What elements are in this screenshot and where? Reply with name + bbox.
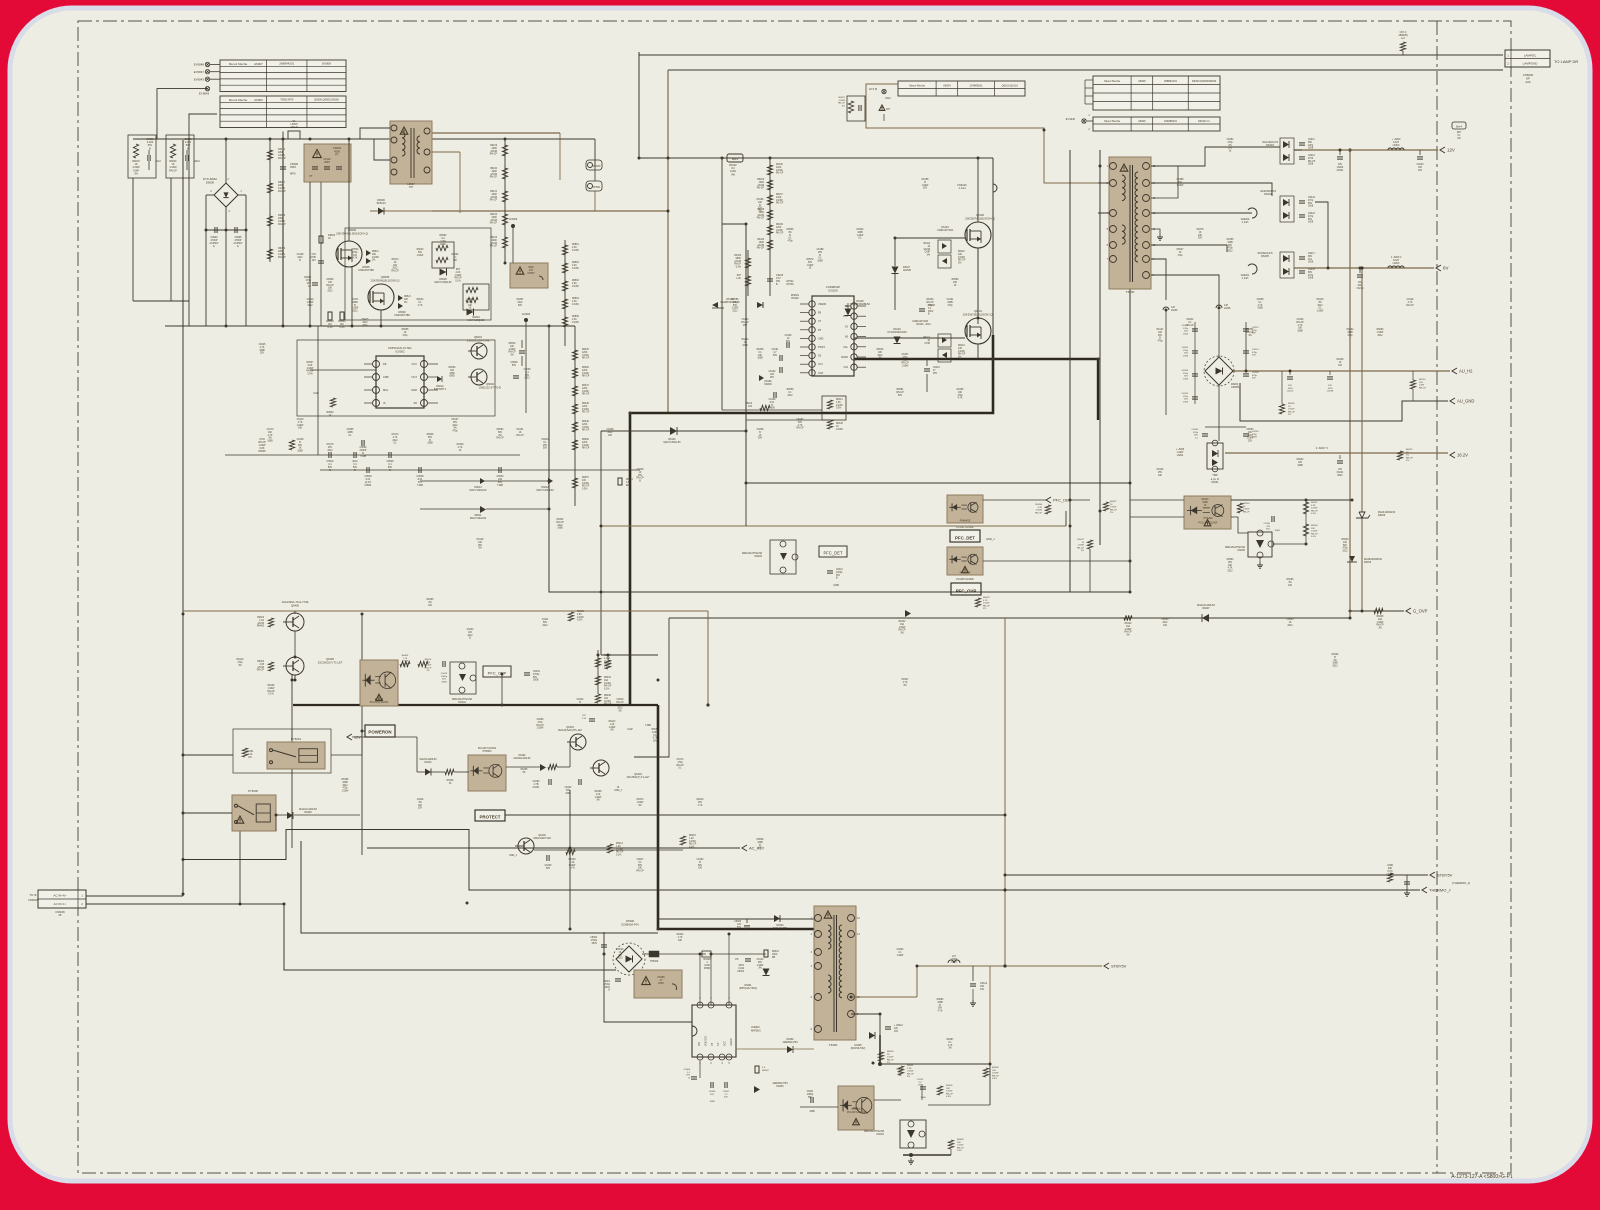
svg-text:1K: 1K [954, 285, 957, 287]
svg-text:RN-CP: RN-CP [1406, 457, 1413, 459]
svg-text:GND_J: GND_J [614, 789, 623, 792]
svg-text:RN-CP: RN-CP [901, 363, 909, 365]
svg-text:THERMO_J: THERMO_J [1429, 888, 1451, 893]
svg-text:R6121: R6121 [1157, 329, 1164, 331]
svg-text:1/10W: 1/10W [757, 245, 764, 247]
svg-text:C6244: C6244 [1252, 431, 1259, 433]
svg-text:PC123FY22J00F: PC123FY22J00F [847, 1111, 866, 1114]
svg-text:1K: 1K [459, 450, 462, 452]
svg-text:PY6000: PY6000 [248, 789, 258, 793]
svg-text:1/10W: 1/10W [922, 185, 929, 187]
svg-text:R6540: R6540 [877, 349, 884, 351]
svg-text:C6304: C6304 [737, 971, 744, 973]
svg-text:PFC_DET: PFC_DET [823, 551, 843, 556]
svg-text:T6300: T6300 [829, 1043, 838, 1047]
svg-text:ISA123(SAC)TP+1E?: ISA123(SAC)TP+1E? [558, 729, 583, 732]
svg-text:AU_H2: AU_H2 [1459, 369, 1473, 374]
svg-text:4.7K: 4.7K [1258, 305, 1263, 307]
svg-text:R6244: R6244 [1202, 499, 1209, 501]
svg-text:T40B: T40B [645, 724, 651, 727]
svg-text:R6417: R6417 [1078, 539, 1085, 541]
svg-text:IC6401: IC6401 [458, 701, 466, 704]
svg-text:TPN501: TPN501 [592, 186, 601, 189]
svg-text:1/10W: 1/10W [1311, 531, 1318, 533]
svg-text:C6298: C6298 [757, 429, 764, 431]
svg-text:R6695: R6695 [402, 329, 409, 331]
svg-text:D6207: D6207 [1202, 607, 1210, 610]
svg-text:R6559: R6559 [787, 389, 794, 391]
svg-text:OUT: OUT [412, 375, 418, 379]
svg-text:PH6403: PH6403 [960, 571, 971, 575]
svg-text:0.1%: 0.1% [268, 694, 273, 696]
svg-text:50V: 50V [898, 395, 903, 397]
svg-text:R6119: R6119 [958, 345, 965, 347]
svg-text:100p: 100p [1308, 145, 1314, 147]
svg-text:68V: 68V [1308, 272, 1313, 274]
svg-text:1K: 1K [299, 448, 302, 450]
svg-text:D6201: D6201 [1211, 481, 1219, 484]
svg-text:3%: 3% [1333, 660, 1336, 662]
svg-text:R6?: R6? [737, 275, 742, 277]
svg-text:1K: 1K [519, 432, 522, 434]
svg-text:160B: 160B [342, 782, 348, 784]
svg-text:10K: 10K [510, 346, 515, 348]
svg-text:D6506: D6506 [327, 279, 334, 281]
svg-text:D6?00: D6?00 [786, 283, 794, 286]
svg-text:R6049: R6049 [582, 421, 589, 423]
svg-text:D6186: D6186 [922, 179, 929, 181]
svg-text:1K: 1K [469, 308, 472, 310]
svg-text:0.33: 0.33 [328, 326, 333, 329]
svg-text:R6232: R6232 [1406, 449, 1413, 451]
svg-text:3%: 3% [1228, 145, 1231, 147]
svg-text:220K: 220K [492, 171, 498, 173]
svg-text:25V: 25V [1228, 562, 1233, 564]
svg-text:VC2: VC2 [843, 366, 848, 369]
svg-text:Q6400: Q6400 [291, 603, 300, 607]
svg-text:2.2K: 2.2K [456, 272, 461, 274]
svg-text:R6536: R6536 [449, 367, 456, 369]
svg-text:T40B: T40B [497, 484, 503, 487]
svg-text:4.7K: 4.7K [578, 705, 583, 707]
svg-text:RN-CP: RN-CP [1186, 325, 1194, 327]
svg-text:4.7K: 4.7K [268, 435, 273, 437]
svg-text:D6166: D6166 [757, 199, 764, 201]
svg-text:EY6843: EY6843 [199, 92, 210, 96]
svg-text:MA2Y130QL50: MA2Y130QL50 [434, 281, 452, 284]
svg-text:1K: 1K [1339, 362, 1342, 364]
svg-text:MUL: MUL [383, 388, 389, 392]
svg-text:L6200: L6200 [1337, 167, 1344, 169]
svg-text:3%: 3% [478, 548, 481, 550]
svg-text:1/10W: 1/10W [352, 308, 359, 310]
svg-text:FB: FB [818, 312, 821, 315]
svg-text:2012: 2012 [607, 432, 613, 434]
svg-text:R6504: R6504 [352, 249, 359, 251]
svg-text:D2SB60A-F04: D2SB60A-F04 [621, 922, 639, 926]
svg-text:C6521: C6521 [364, 484, 372, 487]
svg-text:1/10W: 1/10W [689, 841, 696, 843]
svg-text:RN-CP: RN-CP [1124, 632, 1132, 634]
svg-text:1608: 1608 [1183, 333, 1189, 335]
svg-text:R6400: R6400 [268, 685, 275, 687]
svg-text:A6005: A6005 [1138, 79, 1146, 83]
svg-text:R6328: R6328 [467, 299, 474, 301]
svg-text:D6367: D6367 [517, 299, 524, 301]
svg-text:IC6402: IC6402 [754, 555, 762, 558]
svg-text:R6301: R6301 [907, 1065, 914, 1067]
svg-text:1/10W: 1/10W [572, 268, 579, 270]
svg-text:R6442: R6442 [899, 621, 906, 623]
svg-text:3%: 3% [907, 1076, 910, 1078]
svg-text:BAT54HT1: BAT54HT1 [434, 388, 447, 391]
svg-text:25V: 25V [898, 1072, 903, 1074]
svg-text:FB: FB [383, 362, 387, 366]
svg-text:RN-CP: RN-CP [1376, 625, 1384, 627]
svg-text:C6307: C6307 [723, 1091, 730, 1093]
svg-text:EMD: EMD [449, 376, 454, 378]
svg-text:3%: 3% [1288, 414, 1291, 416]
svg-text:C6627: C6627 [637, 859, 644, 861]
svg-text:RN-CP: RN-CP [1077, 547, 1084, 549]
svg-text:D6000: D6000 [206, 180, 215, 184]
svg-text:50V: 50V [518, 305, 523, 307]
svg-text:1/10W: 1/10W [946, 1091, 953, 1093]
svg-text:10K: 10K [372, 254, 377, 256]
svg-text:C6419: C6419 [297, 419, 304, 421]
svg-text:R6564: R6564 [572, 298, 579, 300]
svg-text:RN-CP: RN-CP [402, 663, 409, 665]
svg-text:C6225: C6225 [259, 344, 266, 346]
svg-text:R6048: R6048 [582, 403, 589, 405]
svg-text:C6199: C6199 [297, 254, 304, 256]
svg-text:5%: 5% [887, 1062, 890, 1064]
svg-text:160B: 160B [347, 432, 353, 434]
svg-text:3%: 3% [596, 800, 599, 802]
svg-text:1/10W: 1/10W [1377, 622, 1384, 624]
svg-text:RN-CP: RN-CP [496, 438, 504, 440]
svg-text:TO LAMP DR: TO LAMP DR [1554, 59, 1578, 64]
svg-text:RN-CP: RN-CP [636, 871, 644, 873]
svg-text:470p: 470p [342, 788, 348, 790]
svg-text:RN-CP: RN-CP [582, 486, 590, 488]
svg-text:C6101: C6101 [772, 349, 779, 351]
svg-text:10K: 10K [1158, 475, 1163, 477]
svg-text:10K: 10K [946, 1088, 950, 1090]
svg-text:STBY5V: STBY5V [1437, 873, 1453, 878]
svg-text:25V: 25V [818, 252, 823, 254]
svg-text:A6004: A6004 [943, 83, 951, 87]
svg-text:160B: 160B [833, 584, 839, 587]
svg-text:10K: 10K [958, 348, 963, 350]
svg-text:1/10W: 1/10W [857, 235, 864, 237]
svg-text:D6563: D6563 [1162, 619, 1169, 621]
svg-text:50V: 50V [836, 575, 841, 577]
svg-text:D6102: D6102 [791, 297, 799, 300]
svg-text:R6129: R6129 [490, 145, 497, 147]
svg-text:3%: 3% [498, 435, 501, 437]
svg-text:RN-CP: RN-CP [1406, 305, 1414, 307]
svg-text:1/10W: 1/10W [776, 200, 783, 202]
svg-text:2.2A: 2.2A [248, 753, 253, 756]
svg-text:D6303: D6303 [776, 1085, 784, 1088]
svg-text:50V: 50V [773, 355, 778, 357]
svg-text:470p: 470p [1227, 248, 1233, 250]
svg-text:CHP: CHP [313, 391, 319, 395]
svg-text:1uH: 1uH [1171, 307, 1176, 309]
svg-text:R6287: R6287 [947, 1039, 954, 1041]
svg-text:R6265: R6265 [427, 599, 434, 601]
svg-text:160B: 160B [1257, 308, 1263, 310]
svg-text:1/10W: 1/10W [509, 349, 516, 351]
svg-text:D6174: D6174 [392, 434, 399, 436]
svg-text:1/10W: 1/10W [257, 623, 264, 625]
svg-text:1C: 1C [308, 285, 311, 288]
svg-text:RN-CP: RN-CP [757, 188, 765, 190]
svg-text:120K: 120K [582, 388, 588, 390]
svg-text:(05HQ4Z+TPA2): (05HQ4Z+TPA2) [739, 987, 757, 990]
svg-text:R6109: R6109 [776, 224, 783, 226]
svg-text:GND: GND [818, 337, 824, 340]
svg-text:1.1uH: 1.1uH [1242, 277, 1249, 280]
svg-text:2012: 2012 [392, 268, 398, 270]
svg-text:1/8W: 1/8W [449, 373, 455, 375]
svg-text:RN-CP: RN-CP [907, 1073, 914, 1075]
svg-text:1.5K: 1.5K [836, 402, 841, 404]
svg-text:IC6200: IC6200 [1237, 549, 1245, 552]
svg-text:D6190: D6190 [897, 1069, 904, 1071]
svg-text:25V: 25V [743, 325, 748, 327]
svg-text:1000p: 1000p [807, 1094, 814, 1096]
svg-text:R6528: R6528 [258, 450, 266, 453]
svg-text:16V: 16V [1288, 385, 1292, 387]
svg-text:2SK3934(LB)1SONY,Q: 2SK3934(LB)1SONY,Q [371, 278, 401, 282]
svg-text:RN-CP: RN-CP [1311, 533, 1318, 535]
svg-text:250V: 250V [928, 311, 934, 313]
svg-text:50V: 50V [442, 679, 446, 681]
svg-text:RN-CP: RN-CP [490, 154, 498, 156]
svg-text:1KV: 1KV [311, 259, 316, 262]
svg-text:3%: 3% [983, 608, 986, 610]
svg-text:MSIN6: MSIN6 [764, 383, 772, 386]
svg-text:RN-CP: RN-CP [490, 177, 498, 179]
svg-text:3%: 3% [1248, 335, 1251, 337]
svg-text:250V: 250V [592, 943, 598, 945]
svg-text:R6428: R6428 [569, 859, 576, 861]
svg-text:C6413: C6413 [441, 673, 448, 675]
svg-text:470p: 470p [787, 241, 793, 243]
svg-text:1/10W: 1/10W [417, 255, 424, 257]
svg-text:D6206: D6206 [1364, 561, 1372, 564]
svg-text:2012: 2012 [617, 708, 623, 710]
svg-text:VCC: VCC [412, 362, 418, 366]
svg-text:1K: 1K [329, 414, 332, 417]
svg-text:C6?: C6? [886, 109, 891, 111]
svg-text:D6208: D6208 [1378, 514, 1386, 517]
svg-text:Q6100,Q6101: Q6100,Q6101 [1002, 83, 1019, 87]
svg-text:D6008: D6008 [322, 62, 331, 66]
svg-text:R6511: R6511 [372, 251, 379, 253]
svg-text:RN-CP: RN-CP [776, 173, 784, 175]
svg-text:10K: 10K [1198, 235, 1203, 237]
svg-text:160B: 160B [441, 681, 447, 683]
svg-text:1/10W: 1/10W [490, 243, 497, 245]
svg-text:50V: 50V [525, 375, 530, 377]
svg-text:3%: 3% [268, 438, 271, 440]
svg-text:RN-CP: RN-CP [776, 233, 784, 235]
svg-text:R6057: R6057 [582, 477, 589, 479]
svg-text:RN-CP: RN-CP [582, 430, 590, 432]
svg-text:R6419: R6419 [237, 659, 244, 661]
svg-text:PFC_OVP: PFC_OVP [956, 589, 977, 594]
svg-text:RN-CP: RN-CP [958, 354, 966, 356]
svg-text:25V: 25V [453, 422, 458, 424]
svg-text:RN-CP: RN-CP [278, 223, 286, 226]
svg-text:2012: 2012 [787, 395, 793, 397]
svg-text:50V: 50V [710, 1094, 714, 1096]
svg-text:50V: 50V [1184, 399, 1188, 401]
svg-text:D6203-D6205/D6204: D6203-D6205/D6204 [1192, 79, 1217, 83]
svg-text:PT: PT [309, 174, 313, 178]
svg-text:MA2Y130QL50: MA2Y130QL50 [467, 319, 485, 322]
svg-text:680K: 680K [736, 258, 742, 260]
svg-text:RN-CP: RN-CP [391, 271, 399, 273]
svg-text:160B: 160B [1297, 465, 1303, 467]
svg-text:268894201: 268894201 [279, 62, 294, 66]
svg-text:2012: 2012 [327, 450, 333, 452]
svg-text:R6410: R6410 [697, 799, 704, 801]
svg-text:50V: 50V [418, 252, 423, 254]
svg-text:0.5%: 0.5% [992, 1078, 997, 1080]
svg-text:4.7B: 4.7B [534, 784, 539, 786]
svg-text:2012: 2012 [557, 525, 563, 527]
svg-text:470p: 470p [1252, 375, 1258, 377]
svg-text:3%: 3% [618, 711, 621, 713]
svg-text:T6200: T6200 [1126, 290, 1135, 294]
svg-text:120K: 120K [582, 352, 588, 354]
svg-text:470p: 470p [537, 722, 543, 724]
svg-text:2012: 2012 [467, 635, 473, 637]
svg-text:R6562: R6562 [572, 262, 579, 264]
svg-text:1/10W: 1/10W [836, 429, 843, 431]
svg-text:50V: 50V [733, 305, 738, 307]
svg-text:3%: 3% [948, 1048, 951, 1050]
svg-text:10K: 10K [958, 254, 963, 256]
svg-text:25V: 25V [1228, 245, 1233, 247]
svg-text:RN-CP: RN-CP [556, 522, 564, 524]
svg-text:160B: 160B [709, 1101, 715, 1103]
svg-text:R6209: R6209 [1288, 403, 1295, 405]
svg-text:C6210: C6210 [1287, 391, 1294, 393]
svg-text:RN-CP: RN-CP [992, 1075, 999, 1077]
svg-text:4.7K: 4.7K [298, 422, 303, 424]
svg-text:3%: 3% [878, 358, 881, 360]
svg-text:C6388: C6388 [1177, 179, 1184, 181]
svg-text:3%: 3% [453, 428, 456, 430]
svg-text:POWERON: POWERON [368, 730, 391, 735]
svg-text:IC6301: IC6301 [876, 1133, 884, 1136]
svg-text:1/10W: 1/10W [907, 1071, 914, 1073]
svg-text:D6203: D6203 [1266, 143, 1274, 147]
svg-text:160B: 160B [565, 793, 571, 795]
svg-text:C6217: C6217 [1308, 253, 1315, 255]
svg-text:MIP2H2: MIP2H2 [751, 1028, 761, 1032]
svg-text:C6529: C6529 [307, 299, 314, 301]
svg-text:120K: 120K [759, 182, 765, 184]
svg-text:5K: 5K [523, 772, 526, 774]
svg-text:PT: PT [335, 153, 339, 157]
svg-text:16A: 16A [1378, 618, 1383, 621]
svg-text:D6400: D6400 [304, 811, 312, 814]
svg-text:3%: 3% [842, 105, 845, 107]
svg-text:1/10W: 1/10W [776, 170, 783, 172]
svg-text:1/10W: 1/10W [899, 627, 906, 629]
svg-text:2012: 2012 [297, 257, 303, 259]
svg-text:UNZ1GRT106: UNZ1GRT106 [937, 229, 954, 232]
svg-text:2.2K: 2.2K [572, 265, 577, 267]
svg-text:2.2K: 2.2K [572, 283, 577, 285]
svg-text:2012: 2012 [885, 97, 891, 100]
svg-text:220K: 220K [492, 217, 498, 219]
svg-text:VS: VS [845, 325, 849, 328]
svg-text:IC6002: IC6002 [395, 349, 404, 353]
svg-text:4.7K: 4.7K [393, 437, 398, 439]
svg-text:470p: 470p [1347, 335, 1353, 337]
svg-text:1/10W: 1/10W [490, 197, 497, 199]
svg-text:D6332: D6332 [557, 519, 564, 521]
svg-text:C6404: C6404 [533, 671, 540, 673]
svg-text:3%: 3% [927, 255, 930, 257]
svg-text:50V: 50V [498, 432, 503, 434]
svg-text:C6371: C6371 [352, 299, 359, 301]
svg-text:3%: 3% [510, 355, 513, 357]
svg-text:68uF: 68uF [1337, 475, 1343, 477]
svg-text:C6102: C6102 [769, 371, 776, 373]
svg-text:R6640: R6640 [417, 249, 424, 251]
svg-text:RN-CP: RN-CP [757, 218, 765, 220]
svg-text:RN-LP: RN-LP [734, 264, 741, 266]
svg-text:JL6003: JL6003 [509, 217, 518, 221]
svg-text:12V: 12V [1447, 148, 1455, 153]
svg-text:10V: 10V [1328, 385, 1332, 387]
svg-text:C6300: C6300 [590, 937, 597, 939]
svg-text:2012: 2012 [362, 322, 368, 324]
svg-text:RN-CP: RN-CP [983, 605, 990, 607]
svg-text:268894101: 268894101 [1164, 79, 1178, 83]
svg-text:FPRD: FPRD [704, 967, 711, 970]
svg-text:AC IN<L>: AC IN<L> [54, 902, 67, 906]
svg-text:120K: 120K [776, 227, 782, 229]
svg-text:ZD: ZD [414, 401, 418, 405]
svg-text:A6006: A6006 [1138, 119, 1146, 123]
svg-text:R6106: R6106 [757, 179, 764, 181]
svg-text:R6?: R6? [1457, 132, 1462, 134]
svg-text:1/10W: 1/10W [569, 865, 576, 867]
svg-text:D6644: D6644 [542, 439, 549, 441]
svg-text:4.7K: 4.7K [678, 937, 683, 939]
svg-text:OCP: OCP [818, 372, 824, 375]
svg-text:STBY5V: STBY5V [1111, 964, 1127, 969]
svg-text:L6300: L6300 [951, 959, 958, 961]
svg-text:1608: 1608 [1308, 222, 1314, 224]
svg-text:25V: 25V [1158, 335, 1163, 337]
svg-text:RN-CP: RN-CP [1308, 161, 1316, 163]
svg-text:160B: 160B [1347, 332, 1353, 334]
svg-text:AC_RLY: AC_RLY [749, 846, 765, 851]
svg-text:1/10W: 1/10W [307, 302, 314, 304]
svg-text:MPS: MPS [290, 172, 296, 176]
svg-text:L6204: L6204 [1177, 455, 1184, 457]
